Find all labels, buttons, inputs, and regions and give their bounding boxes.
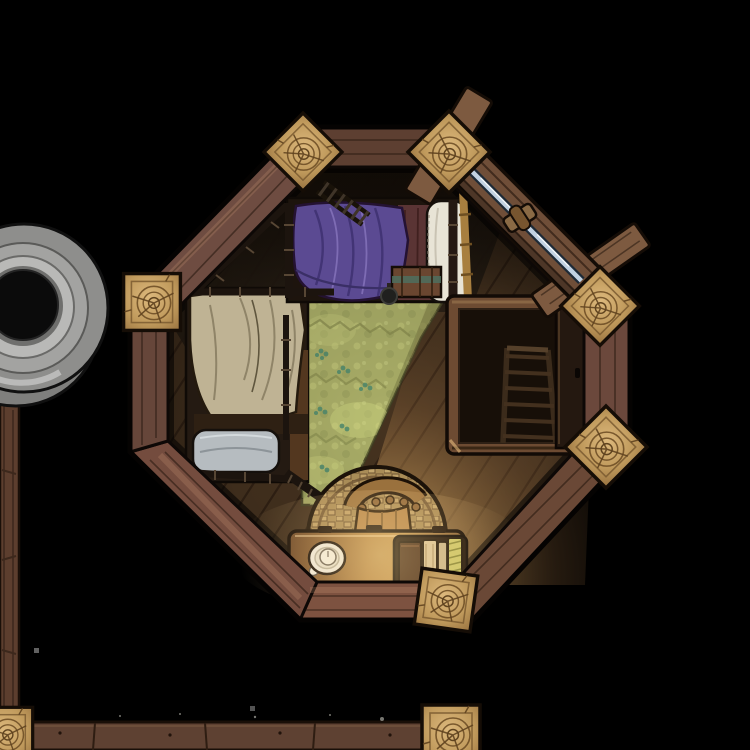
log-post-left <box>124 274 181 331</box>
map-canvas[interactable] <box>0 0 750 750</box>
storage-chest <box>392 267 441 297</box>
log-post-bottom-right <box>414 568 478 632</box>
battle-map <box>0 0 750 750</box>
bed-beige <box>186 288 308 482</box>
trapdoor[interactable] <box>447 296 586 454</box>
support-post <box>0 386 19 750</box>
support-beam <box>0 722 427 750</box>
